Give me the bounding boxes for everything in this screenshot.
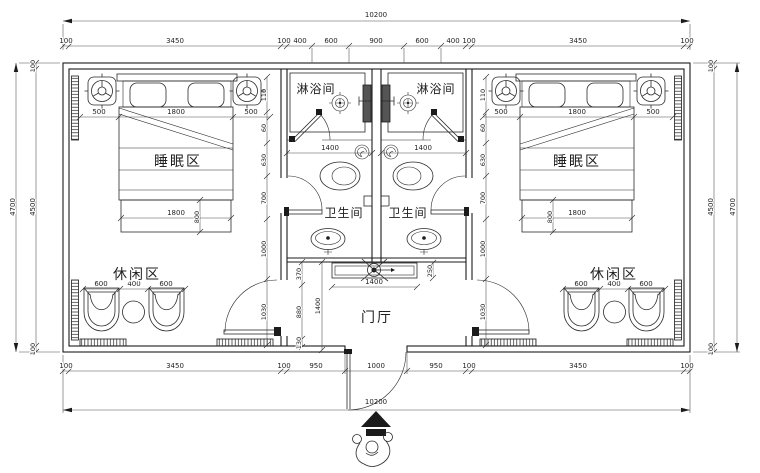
dim-bedR-0: 500 — [494, 108, 507, 116]
room-door-leaf-right — [476, 330, 529, 334]
toilet-bowl-left — [320, 162, 360, 190]
wc-door-swing-right — [431, 176, 465, 210]
armchair-icon — [629, 288, 664, 331]
entry-arrow-base — [366, 429, 386, 436]
shower-wall-panel-left — [363, 85, 371, 122]
dim-bot-5: 950 — [429, 362, 442, 370]
dim-bot-6: 100 — [462, 362, 475, 370]
dim-overall-top: 10200 — [365, 11, 387, 19]
arrow-icon — [63, 19, 72, 23]
dim-leisL-2: 600 — [159, 280, 172, 288]
pillow — [529, 83, 565, 107]
person-figure — [353, 433, 393, 467]
dim-scR-4: 1000 — [479, 241, 487, 258]
dim-right-4500: 4500 — [707, 198, 715, 216]
paper-holder-right — [381, 196, 389, 206]
entry-arrow-icon — [361, 411, 391, 427]
label-wc-left: 卫生间 — [324, 206, 363, 220]
shower-rooms: 淋浴间 淋浴间 — [289, 73, 464, 142]
shower-door-swing-right — [423, 113, 434, 140]
dim-top-7: 400 — [446, 37, 459, 45]
dim-top-6: 600 — [415, 37, 428, 45]
dim-leisL-0: 600 — [94, 280, 107, 288]
arrow-icon — [14, 63, 18, 72]
dim-bot-7: 3450 — [569, 362, 587, 370]
dim-scL-4: 1000 — [260, 241, 268, 258]
arrow-icon — [681, 408, 690, 412]
bed-linens — [520, 108, 634, 190]
dim-bot-1: 3450 — [166, 362, 184, 370]
paper-holder-left — [364, 196, 372, 206]
window-strip-bottom-1 — [80, 339, 126, 346]
label-wc-right: 卫生间 — [388, 206, 427, 220]
door-hinge — [464, 207, 469, 216]
label-sleep-right: 睡眠区 — [553, 154, 601, 170]
dim-scR-2: 630 — [479, 154, 487, 166]
dim-leisR-0: 600 — [574, 280, 587, 288]
dim-scL-5: 1030 — [260, 304, 268, 321]
dim-top-8: 100 — [462, 37, 475, 45]
sink-drain — [326, 236, 330, 240]
bed-linens — [119, 108, 233, 190]
door-hinge — [458, 136, 464, 142]
side-table — [604, 301, 626, 323]
toilet-bowl-left-inner — [332, 167, 356, 185]
window-strip-bottom-2 — [217, 339, 273, 346]
dim-top-3: 400 — [293, 37, 306, 45]
door-hinge — [284, 207, 289, 216]
dim-bot-3: 950 — [309, 362, 322, 370]
dim-leisR-2: 600 — [639, 280, 652, 288]
window-strip-right-bottom — [675, 280, 682, 340]
headboard — [117, 74, 237, 81]
dim-top-10: 100 — [680, 37, 693, 45]
pillow — [188, 83, 224, 107]
wc-door-leaf-right — [431, 210, 465, 214]
dim-bedR-1: 1800 — [568, 108, 586, 116]
wall-wc-hall — [287, 258, 466, 262]
dim-bedL-1: 1800 — [167, 108, 185, 116]
dim-bedR-d: 800 — [546, 211, 554, 223]
dim-showerL: 1400 — [321, 144, 339, 152]
dim-bot-8: 100 — [680, 362, 693, 370]
pillow — [130, 83, 166, 107]
toilet-bowl-right — [393, 162, 433, 190]
dim-left-100t: 100 — [29, 60, 37, 72]
door-hinge — [344, 349, 352, 354]
dim-left-100b: 100 — [29, 343, 37, 355]
label-sleep-left: 睡眠区 — [154, 154, 202, 170]
dims-top: 10200 100 3450 100 400 600 900 600 400 1… — [59, 11, 693, 63]
floor-plan-drawing: 10200 100 3450 100 400 600 900 600 400 1… — [0, 0, 760, 473]
sink-drain — [422, 236, 426, 240]
bathrooms: 卫生间 卫生间 — [284, 145, 469, 255]
shower-door-leaf-right — [431, 113, 461, 142]
ceiling-light-icon — [489, 74, 524, 109]
toilet-bowl-right-inner — [397, 167, 421, 185]
shower-wall-panel-right — [382, 85, 390, 122]
dim-top-0: 100 — [59, 37, 72, 45]
dim-scR-5: 1030 — [479, 304, 487, 321]
label-shower-right: 淋浴间 — [416, 82, 455, 96]
dim-scL-3: 700 — [260, 192, 268, 204]
entrance-door-leaf — [347, 352, 350, 409]
dim-bedR-w: 1800 — [568, 209, 586, 217]
arrow-icon — [681, 19, 690, 23]
window-strip-left-bottom — [72, 280, 79, 340]
wc-door-swing-left — [288, 176, 322, 210]
faucet-icon — [420, 250, 428, 256]
dim-scL-1: 60 — [260, 124, 268, 132]
entrance-opening — [346, 345, 407, 354]
ceiling-light-icon — [634, 74, 669, 109]
room-door-leaf-left — [224, 330, 277, 334]
dim-top-1: 3450 — [166, 37, 184, 45]
partition-center — [372, 69, 381, 262]
dim-counter-w: 1400 — [365, 278, 383, 286]
dim-lines-left — [16, 63, 60, 352]
dim-bot-2: 100 — [277, 362, 290, 370]
dim-hallc-0: 370 — [295, 268, 303, 280]
dims-bottom: 100 3450 100 950 1000 950 100 3450 100 1… — [59, 352, 693, 413]
window-strip-bottom-4 — [627, 339, 673, 346]
pillow-shelf — [123, 81, 231, 107]
door-hinge — [289, 136, 295, 142]
dim-scL-2: 630 — [260, 154, 268, 166]
arrow-icon — [63, 408, 72, 412]
dim-overall-bottom: 10200 — [365, 398, 387, 406]
pillow-shelf — [522, 81, 630, 107]
dim-right-100b: 100 — [707, 343, 715, 355]
dim-bedL-2: 500 — [244, 108, 257, 116]
label-leisure-left: 休闲区 — [113, 267, 161, 283]
label-shower-left: 淋浴间 — [296, 82, 335, 96]
shower-door-swing-left — [319, 113, 330, 140]
dim-scR-1: 60 — [479, 124, 487, 132]
dims-left: 4700 100 4500 100 — [9, 60, 60, 355]
dims-right: 100 4500 100 4700 — [693, 60, 740, 355]
door-hinge — [431, 109, 437, 115]
dim-left-outer: 4700 — [9, 198, 17, 216]
armchair-icon — [564, 288, 599, 331]
dim-top-9: 3450 — [569, 37, 587, 45]
side-table — [123, 301, 145, 323]
armchair-icon — [84, 288, 119, 331]
arrow-icon — [14, 343, 18, 352]
dim-hallc-1: 880 — [295, 306, 303, 318]
toilet-tank-icon — [384, 145, 398, 159]
dim-bot-4: 1000 — [367, 362, 385, 370]
door-hinge — [274, 327, 281, 336]
ceiling-light-icon — [85, 74, 120, 109]
armchair-icon — [149, 288, 184, 331]
floor-plan-page: 10200 100 3450 100 400 600 900 600 400 1… — [0, 0, 760, 473]
faucet-icon — [324, 250, 332, 256]
dim-top-4: 600 — [324, 37, 337, 45]
toilet-tank-icon — [355, 145, 369, 159]
wc-door-leaf-left — [288, 210, 322, 214]
dim-right-outer: 4700 — [729, 198, 737, 216]
dim-bot-0: 100 — [59, 362, 72, 370]
window-strip-right-top — [675, 76, 682, 140]
door-hinge — [316, 109, 322, 115]
dim-scR-3: 700 — [479, 192, 487, 204]
dim-bedR-2: 500 — [646, 108, 659, 116]
dim-top-5: 900 — [369, 37, 382, 45]
dim-showerR: 1400 — [414, 144, 432, 152]
shower-door-leaf-left — [292, 113, 322, 142]
dim-bedL-d: 800 — [193, 211, 201, 223]
dim-counter-d: 250 — [426, 265, 434, 277]
dim-hall-h: 1400 — [314, 298, 322, 315]
dim-top-2: 100 — [277, 37, 290, 45]
label-hall: 门厅 — [361, 310, 393, 326]
room-door-swing-left — [225, 280, 277, 332]
label-leisure-right: 休闲区 — [590, 267, 638, 283]
dim-bedL-0: 500 — [92, 108, 105, 116]
pillow — [587, 83, 623, 107]
dim-bedL-w: 1800 — [167, 209, 185, 217]
door-hinge — [472, 327, 479, 336]
inner-wall-face — [69, 69, 684, 346]
headboard — [516, 74, 636, 81]
window-strip-left-top — [72, 76, 79, 140]
dim-right-100t: 100 — [707, 60, 715, 72]
dim-hallc-2: 130 — [295, 337, 303, 349]
arrow-icon — [735, 343, 739, 352]
arrow-icon — [735, 63, 739, 72]
outer-wall — [63, 63, 690, 352]
dim-left-4500: 4500 — [29, 198, 37, 216]
dim-scR-0: 110 — [479, 89, 487, 101]
